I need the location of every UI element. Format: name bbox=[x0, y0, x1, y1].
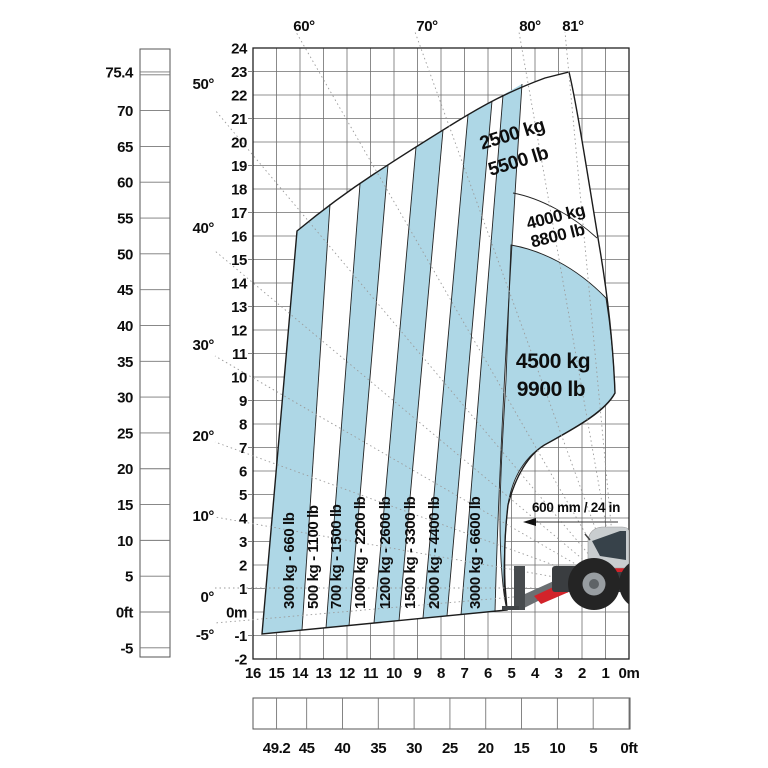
tick-label: 20 bbox=[478, 740, 494, 757]
bottom-meter-labels: 161514131211109876543210m bbox=[245, 665, 639, 682]
tick-label: 10 bbox=[231, 370, 247, 387]
tick-label: 11 bbox=[363, 665, 378, 682]
tick-label: 14 bbox=[292, 665, 309, 682]
telehandler-illustration: MANITOU bbox=[502, 527, 671, 610]
fork-carriage bbox=[514, 566, 525, 610]
tick-label: 19 bbox=[231, 158, 247, 175]
tick-label: 30° bbox=[193, 337, 215, 354]
tick-label: 3000 kg - 6600 lb bbox=[467, 496, 484, 609]
tick-label: 20 bbox=[231, 135, 247, 152]
tick-label: 2000 kg - 4400 lb bbox=[426, 496, 443, 609]
tick-label: 5 bbox=[589, 740, 597, 757]
tick-label: 20 bbox=[117, 461, 133, 478]
tick-label: 30 bbox=[406, 740, 422, 757]
tick-label: 7 bbox=[461, 665, 469, 682]
tick-label: 49.2 bbox=[263, 740, 291, 757]
tick-label: 1200 kg - 2600 lb bbox=[377, 496, 394, 609]
tick-label: -5 bbox=[120, 640, 133, 657]
tick-label: 12 bbox=[231, 323, 247, 340]
tick-label: 15 bbox=[514, 740, 530, 757]
left-meter-labels: 2423222120191817161514131211109876543210… bbox=[226, 41, 248, 669]
tick-label: 0° bbox=[200, 589, 214, 606]
tick-label: 22 bbox=[231, 88, 247, 105]
tick-label: 15 bbox=[231, 252, 247, 269]
tick-label: 1000 kg - 2200 lb bbox=[352, 496, 369, 609]
tick-label: 16 bbox=[231, 229, 247, 246]
bottom-feet-ruler bbox=[253, 698, 630, 729]
tick-label: 16 bbox=[245, 665, 261, 682]
left-feet-ruler bbox=[140, 49, 170, 657]
tick-label: 9 bbox=[414, 665, 422, 682]
tick-label: 3 bbox=[555, 665, 563, 682]
tick-label: 1 bbox=[239, 581, 247, 598]
tick-label: 24 bbox=[231, 41, 248, 58]
tick-label: 60 bbox=[117, 175, 133, 192]
tick-label: 5 bbox=[508, 665, 516, 682]
rear-tire bbox=[619, 558, 671, 610]
tick-label: 55 bbox=[117, 211, 133, 228]
tick-label: 60° bbox=[293, 18, 315, 35]
tick-label: 21 bbox=[231, 111, 247, 128]
overhang-annotation: 600 mm / 24 in bbox=[523, 500, 620, 526]
tick-label: 10 bbox=[386, 665, 402, 682]
tick-label: 0ft bbox=[620, 740, 638, 757]
tick-label: 3 bbox=[239, 534, 247, 551]
tick-label: 5 bbox=[239, 487, 247, 504]
tick-label: 70° bbox=[416, 18, 438, 35]
tick-label: 50° bbox=[193, 76, 215, 93]
tick-label: 9 bbox=[239, 393, 247, 410]
tick-label: 81° bbox=[562, 18, 584, 35]
tick-label: 35 bbox=[117, 354, 133, 371]
tick-label: 18 bbox=[231, 182, 247, 199]
tick-label: 25 bbox=[442, 740, 458, 757]
tick-label: 12 bbox=[339, 665, 355, 682]
tick-label: 80° bbox=[519, 18, 541, 35]
telehandler-load-chart: MANITOU 600 mm / 24 in 2500 kg 5500 lb 4… bbox=[0, 0, 768, 768]
tick-label: 65 bbox=[117, 139, 133, 156]
tick-label: 10 bbox=[549, 740, 565, 757]
tick-label: 70 bbox=[117, 103, 133, 120]
tick-label: 0ft bbox=[116, 605, 134, 622]
overhang-label: 600 mm / 24 in bbox=[532, 500, 620, 515]
tick-label: 0m bbox=[226, 605, 247, 622]
tick-label: 45 bbox=[117, 282, 133, 299]
tick-label: 1500 kg - 3300 lb bbox=[402, 496, 419, 609]
tick-label: 8 bbox=[437, 665, 445, 682]
tick-label: 4 bbox=[531, 665, 540, 682]
tick-label: 6 bbox=[484, 665, 492, 682]
tick-label: 25 bbox=[117, 425, 133, 442]
tick-label: 5 bbox=[125, 569, 133, 586]
left-arrowhead-icon bbox=[523, 518, 536, 526]
tick-label: 700 kg - 1500 lb bbox=[328, 504, 345, 609]
tick-label: 20° bbox=[193, 428, 215, 445]
tick-label: 6 bbox=[239, 464, 247, 481]
tick-label: 40 bbox=[117, 318, 133, 335]
tick-label: 4 bbox=[239, 511, 248, 528]
load-chart-page: MANITOU 600 mm / 24 in 2500 kg 5500 lb 4… bbox=[0, 0, 768, 768]
tick-label: 1 bbox=[602, 665, 610, 682]
tick-label: 14 bbox=[231, 276, 248, 293]
front-hub bbox=[589, 579, 599, 589]
tick-label: 40° bbox=[193, 220, 215, 237]
top-angle-labels: 60°70°80°81° bbox=[293, 18, 584, 35]
meter-tick-marks bbox=[248, 72, 253, 636]
tick-label: 17 bbox=[231, 205, 247, 222]
tick-label: 30 bbox=[117, 390, 133, 407]
tick-label: 500 kg - 1100 lb bbox=[305, 505, 322, 609]
tick-label: -1 bbox=[234, 628, 247, 645]
zone-4500-lb: 9900 lb bbox=[517, 378, 585, 401]
forks bbox=[502, 606, 519, 610]
tick-label: 50 bbox=[117, 246, 133, 263]
tick-label: 13 bbox=[316, 665, 332, 682]
tick-label: 300 kg - 660 lb bbox=[281, 512, 298, 609]
zone-4500-kg: 4500 kg bbox=[516, 350, 590, 373]
tick-label: 11 bbox=[232, 346, 247, 363]
tick-label: 45 bbox=[299, 740, 315, 757]
tick-label: 40 bbox=[335, 740, 351, 757]
tick-label: 7 bbox=[239, 440, 247, 457]
tick-label: 10° bbox=[193, 508, 215, 525]
tick-label: 15 bbox=[269, 665, 285, 682]
tick-label: 23 bbox=[231, 64, 247, 81]
tick-label: 75.4 bbox=[105, 64, 134, 81]
left-feet-labels: 75.47065605550454035302520151050ft-5 bbox=[105, 64, 134, 657]
bottom-feet-labels: 49.2454035302520151050ft bbox=[263, 740, 638, 757]
tick-label: 35 bbox=[370, 740, 386, 757]
left-angle-labels: 50°40°30°20°10°0°-5° bbox=[193, 76, 215, 644]
tick-label: 0m bbox=[619, 665, 640, 682]
tick-label: 15 bbox=[117, 497, 133, 514]
tick-label: 2 bbox=[239, 558, 247, 575]
tick-label: 10 bbox=[117, 533, 133, 550]
tick-label: 8 bbox=[239, 417, 247, 434]
tick-label: 13 bbox=[231, 299, 247, 316]
tick-label: 2 bbox=[578, 665, 586, 682]
tick-label: -5° bbox=[196, 627, 215, 644]
